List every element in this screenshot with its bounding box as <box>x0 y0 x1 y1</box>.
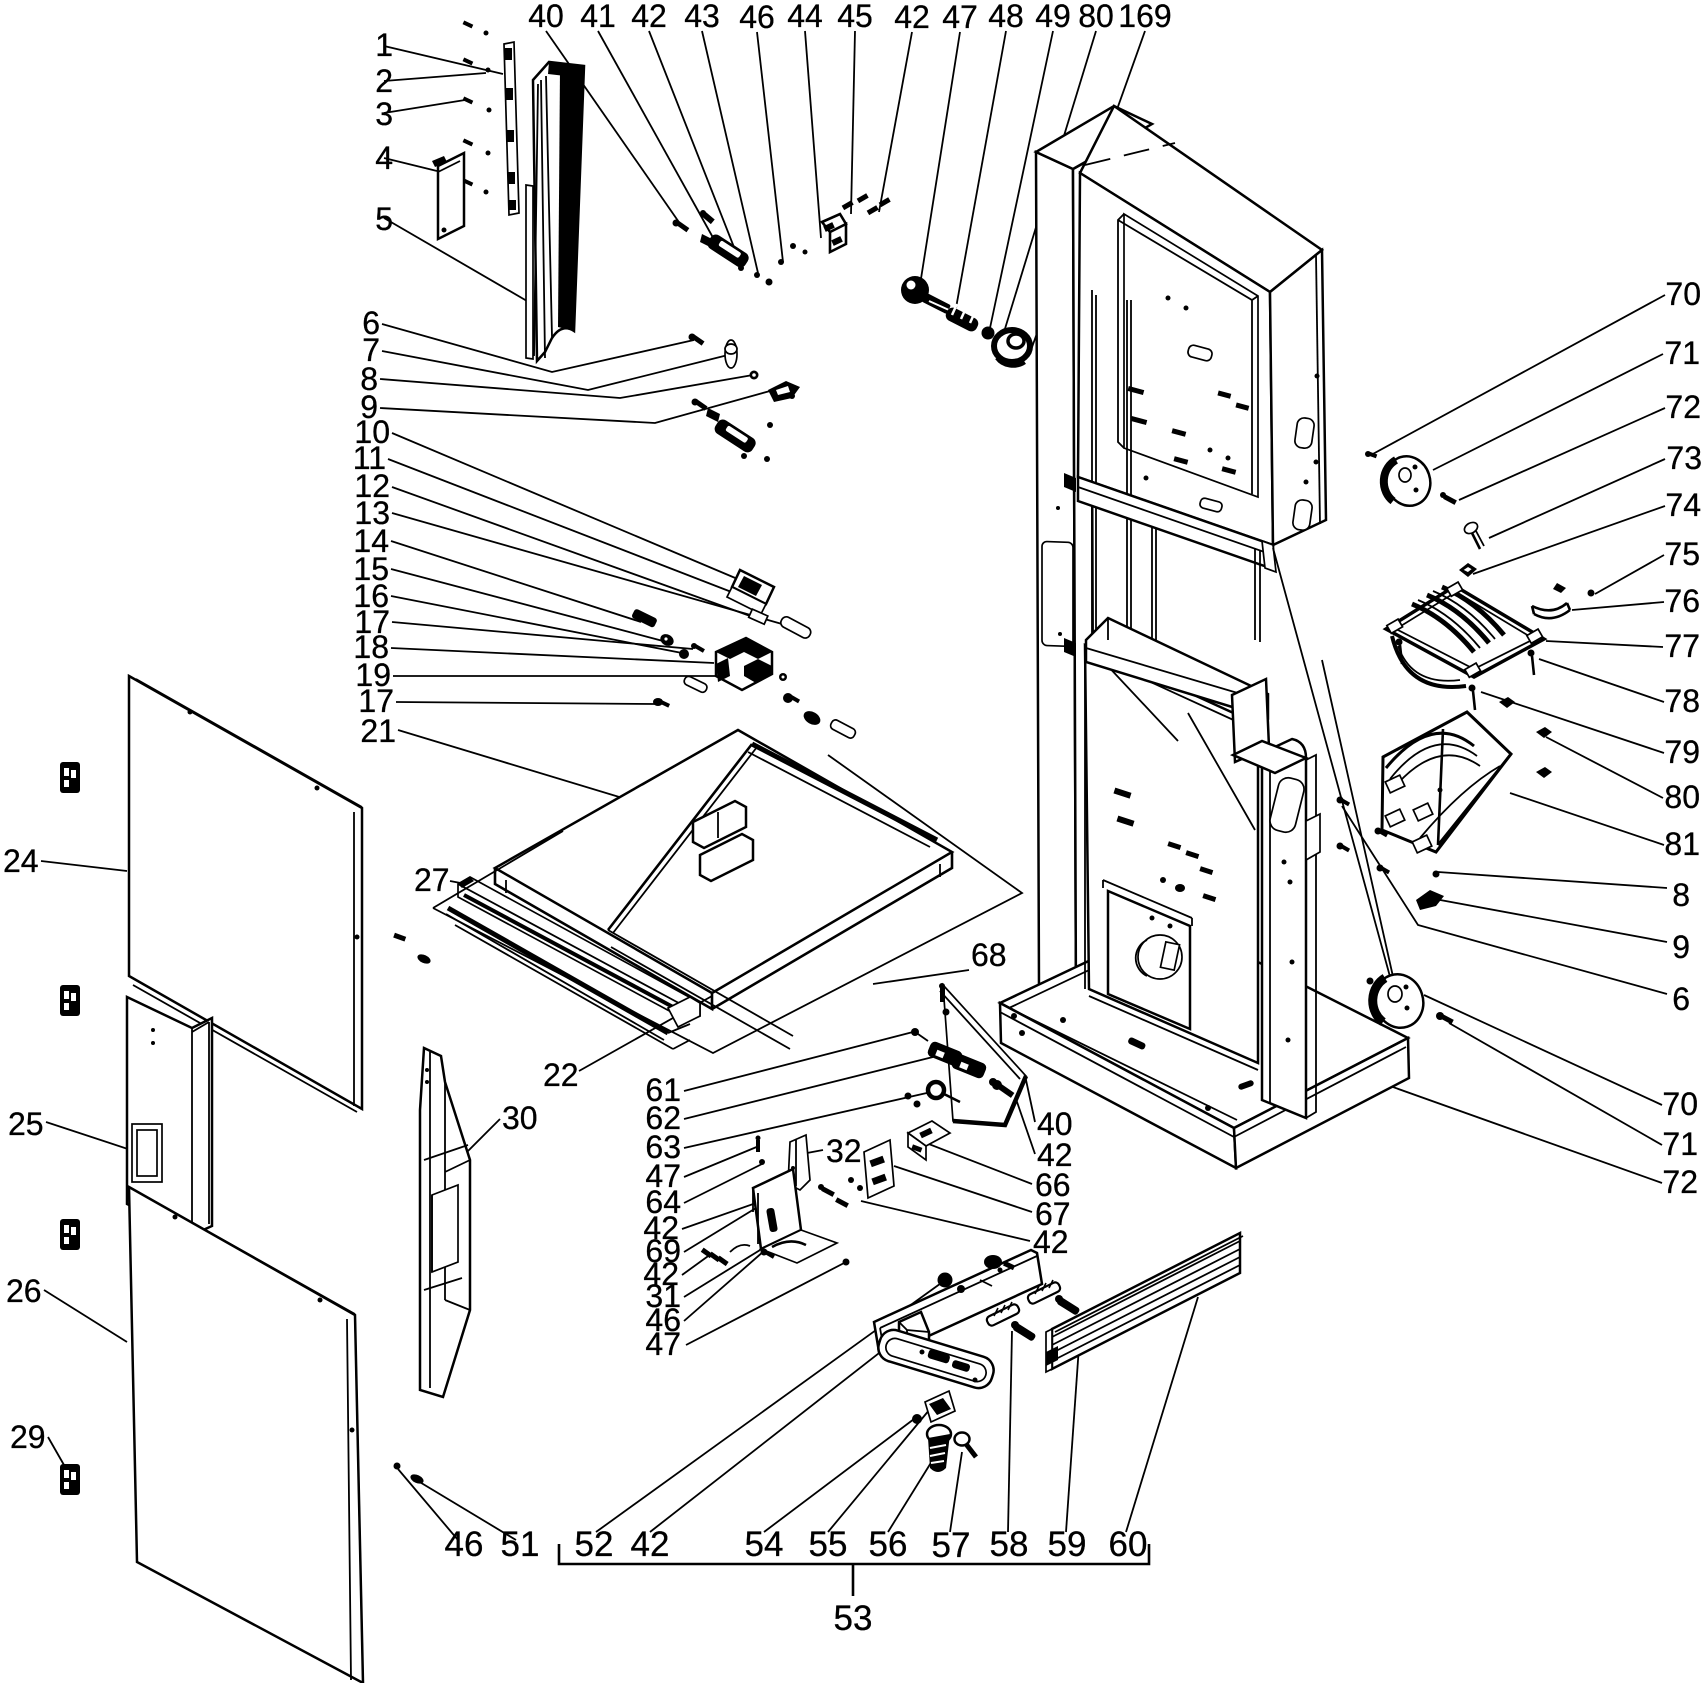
svg-text:74: 74 <box>1665 487 1701 523</box>
svg-text:8: 8 <box>1672 877 1690 913</box>
svg-text:27: 27 <box>414 862 450 898</box>
svg-text:80: 80 <box>1664 779 1700 815</box>
svg-text:21: 21 <box>360 713 396 749</box>
svg-text:32: 32 <box>826 1133 862 1169</box>
svg-text:73: 73 <box>1666 440 1702 476</box>
svg-text:58: 58 <box>990 1525 1029 1564</box>
svg-text:71: 71 <box>1662 1126 1698 1162</box>
svg-text:72: 72 <box>1662 1164 1698 1200</box>
svg-text:80: 80 <box>1078 0 1114 34</box>
svg-text:46: 46 <box>739 0 775 35</box>
svg-text:6: 6 <box>1672 981 1690 1017</box>
svg-text:81: 81 <box>1664 826 1700 862</box>
svg-text:40: 40 <box>528 0 564 34</box>
svg-text:26: 26 <box>6 1273 42 1309</box>
svg-text:60: 60 <box>1109 1525 1148 1564</box>
svg-text:169: 169 <box>1118 0 1171 34</box>
svg-text:70: 70 <box>1665 276 1701 312</box>
svg-text:78: 78 <box>1664 683 1700 719</box>
svg-text:41: 41 <box>580 0 616 34</box>
svg-text:70: 70 <box>1662 1086 1698 1122</box>
svg-text:68: 68 <box>971 937 1007 973</box>
svg-text:49: 49 <box>1035 0 1071 34</box>
svg-text:9: 9 <box>1672 929 1690 965</box>
svg-text:51: 51 <box>501 1525 540 1564</box>
svg-text:47: 47 <box>645 1326 681 1362</box>
svg-text:42: 42 <box>631 1525 670 1564</box>
svg-text:22: 22 <box>543 1057 579 1093</box>
svg-text:44: 44 <box>787 0 823 34</box>
svg-text:47: 47 <box>942 0 978 35</box>
svg-text:59: 59 <box>1048 1525 1087 1564</box>
svg-text:52: 52 <box>575 1525 614 1564</box>
svg-text:48: 48 <box>988 0 1024 34</box>
svg-text:76: 76 <box>1664 583 1700 619</box>
svg-text:42: 42 <box>631 0 667 34</box>
svg-text:30: 30 <box>502 1100 538 1136</box>
svg-text:42: 42 <box>894 0 930 35</box>
svg-text:79: 79 <box>1664 734 1700 770</box>
svg-text:71: 71 <box>1664 335 1700 371</box>
svg-text:25: 25 <box>8 1106 44 1142</box>
svg-text:43: 43 <box>684 0 720 34</box>
svg-text:54: 54 <box>745 1525 784 1564</box>
svg-text:53: 53 <box>834 1599 873 1638</box>
svg-text:45: 45 <box>837 0 873 34</box>
svg-text:72: 72 <box>1665 389 1701 425</box>
svg-text:57: 57 <box>932 1526 971 1565</box>
svg-text:3: 3 <box>375 96 393 132</box>
svg-text:29: 29 <box>10 1419 46 1455</box>
svg-text:24: 24 <box>3 843 39 879</box>
svg-text:75: 75 <box>1664 536 1700 572</box>
svg-text:1: 1 <box>375 27 393 63</box>
svg-text:77: 77 <box>1664 628 1700 664</box>
